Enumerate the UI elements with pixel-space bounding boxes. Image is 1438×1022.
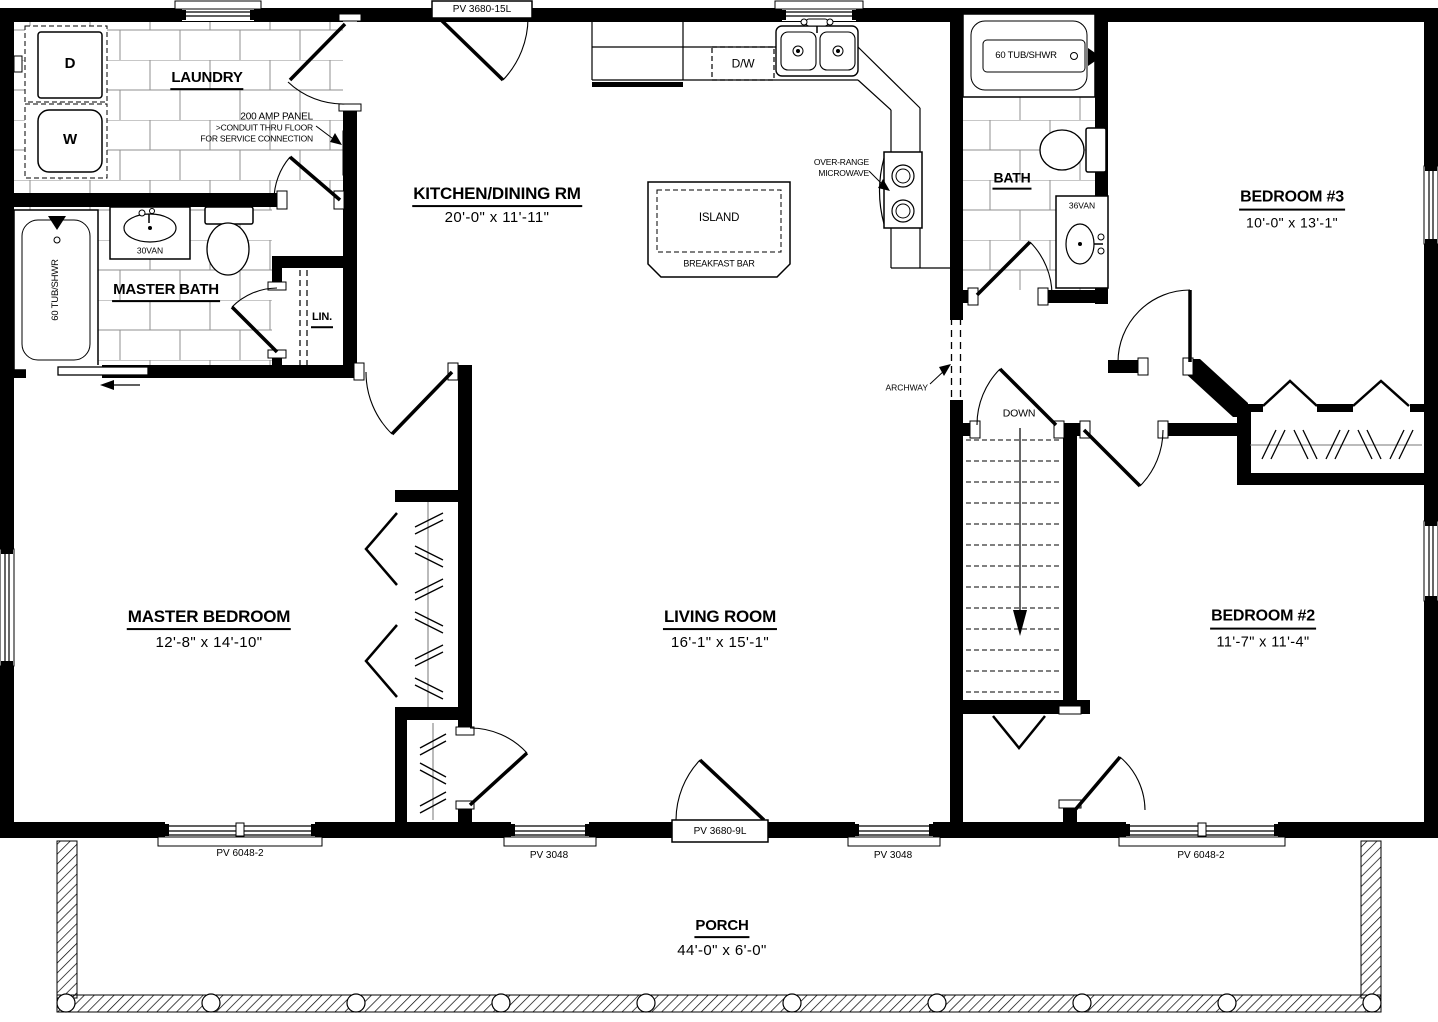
microwave-note-line1: OVER-RANGE <box>814 157 869 168</box>
bedroom3-label: BEDROOM #3 <box>1239 190 1345 211</box>
breakfast-bar-label: BREAKFAST BAR <box>683 259 754 268</box>
porch-dims: 44'-0" x 6'-0" <box>677 943 767 959</box>
bedroom2-label: BEDROOM #2 <box>1210 609 1316 630</box>
stairs-down-label: DOWN <box>1003 408 1035 419</box>
archway-opening <box>952 318 961 402</box>
dishwasher-label: D/W <box>732 58 755 71</box>
island-label: ISLAND <box>699 212 739 224</box>
floor-plan: LAUNDRY D W 200 AMP PANEL >CONDUIT THRU … <box>0 0 1438 1022</box>
living-window-left-label: PV 3048 <box>530 851 568 862</box>
stairs <box>966 428 1061 692</box>
master-vanity-label: 30VAN <box>137 247 163 256</box>
panel-note-line2: >CONDUIT THRU FLOOR <box>200 123 313 134</box>
master-bedroom-window-label: PV 6048-2 <box>216 849 263 860</box>
microwave-note-line2: MICROWAVE <box>814 168 869 179</box>
floor-plan-drawing <box>0 0 1438 1022</box>
hall-tub-label: 60 TUB/SHWR <box>995 51 1057 61</box>
microwave-note: OVER-RANGE MICROWAVE <box>814 157 869 179</box>
electrical-panel-note: 200 AMP PANEL >CONDUIT THRU FLOOR FOR SE… <box>200 112 313 145</box>
linen-closet-door <box>300 270 307 372</box>
front-door-label: PV 3680-9L <box>694 827 747 838</box>
dryer-label: D <box>65 56 76 72</box>
kitchen-patio-door-label: PV 3680-15L <box>453 5 511 16</box>
master-bath-label: MASTER BATH <box>112 282 220 302</box>
master-bedroom-label: MASTER BEDROOM <box>127 608 291 630</box>
panel-note-line3: FOR SERVICE CONNECTION <box>200 134 313 145</box>
bedroom3-dims: 10'-0" x 13'-1" <box>1246 216 1338 231</box>
living-window-right-label: PV 3048 <box>874 851 912 862</box>
hall-vanity-label: 36VAN <box>1069 202 1095 211</box>
panel-note-line1: 200 AMP PANEL <box>200 112 313 123</box>
annotation-arrows <box>930 364 951 384</box>
laundry-label: LAUNDRY <box>170 70 243 90</box>
range <box>869 152 922 228</box>
bath-label: BATH <box>992 171 1031 190</box>
kitchen-label: KITCHEN/DINING RM <box>412 185 582 207</box>
kitchen-sink <box>776 19 858 76</box>
living-room-label: LIVING ROOM <box>663 608 777 630</box>
bedroom2-dims: 11'-7" x 11'-4" <box>1216 635 1309 650</box>
living-room-dims: 16'-1" x 15'-1" <box>671 635 769 651</box>
bedroom2-window-label: PV 6048-2 <box>1177 851 1224 862</box>
washer-label: W <box>63 132 77 148</box>
linen-closet-label: LIN. <box>311 312 333 328</box>
master-bedroom-dims: 12'-8" x 14'-10" <box>156 635 263 651</box>
master-tub-label: 60 TUB/SHWR <box>51 259 61 321</box>
porch-label: PORCH <box>694 918 749 938</box>
archway-label: ARCHWAY <box>886 384 929 393</box>
kitchen-dims: 20'-0" x 11'-11" <box>445 210 550 226</box>
laundry-appliances <box>14 26 107 178</box>
